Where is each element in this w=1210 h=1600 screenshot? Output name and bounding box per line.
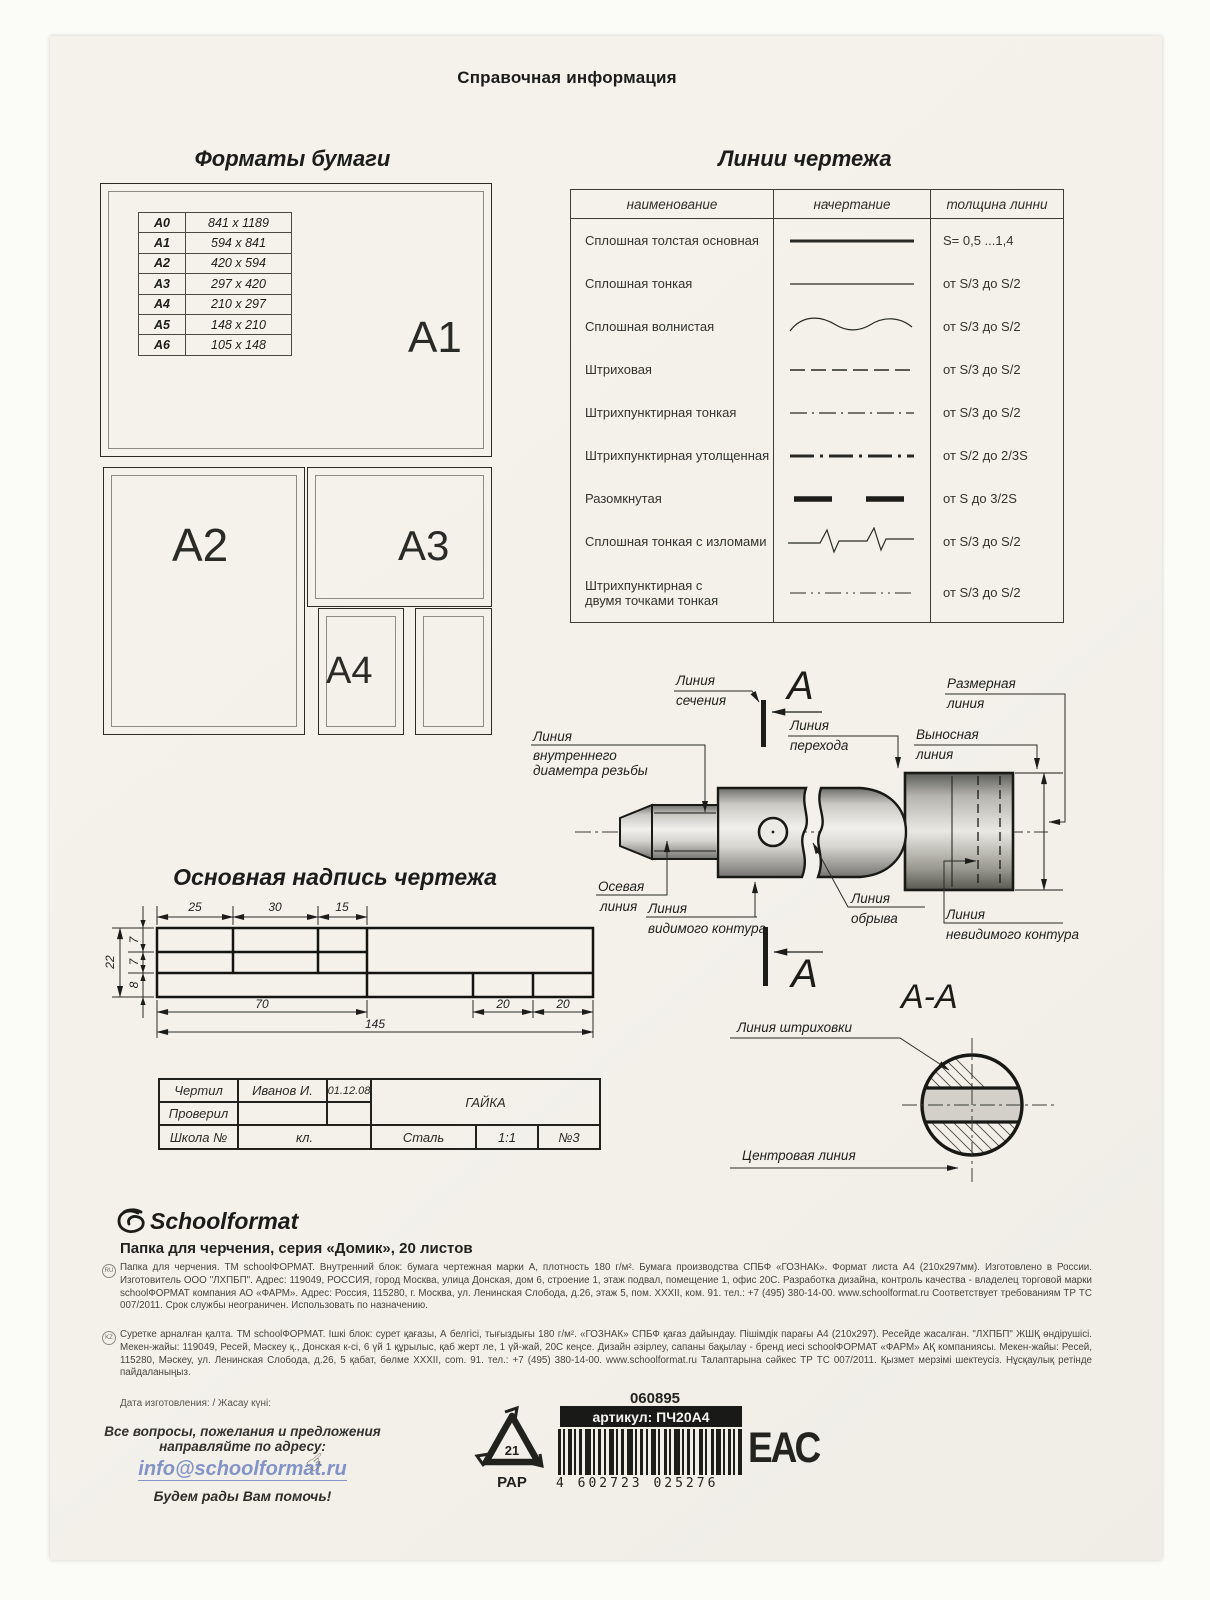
dim-20a: 20 xyxy=(483,997,523,1011)
dim-25: 25 xyxy=(175,900,215,914)
table-row: A6105 x 148 xyxy=(139,334,291,354)
table-row: Сплошная толстая основная S= 0,5 ...1,4 xyxy=(571,219,1063,262)
product-description-ru: Папка для черчения. ТМ schoolФОРМАТ. Вну… xyxy=(120,1262,1092,1313)
dim-7a: 7 xyxy=(122,928,146,952)
callout-section-line: Линия xyxy=(676,673,715,688)
callout-center-line: Центровая линия xyxy=(742,1148,856,1163)
tb-scale: 1:1 xyxy=(477,1126,537,1148)
callout-hidden-contour-line-2: невидимого контура xyxy=(946,927,1079,942)
line-sample-solid-thick xyxy=(786,226,918,256)
dim-8: 8 xyxy=(122,973,146,997)
format-box-a2 xyxy=(103,467,305,735)
callout-thread-diameter-line: Линия xyxy=(533,729,572,744)
line-sample-zigzag xyxy=(786,527,918,557)
callout-hatch-line: Линия штриховки xyxy=(737,1020,852,1035)
line-sample-solid-thin xyxy=(786,269,918,299)
tb-school: Школа № xyxy=(160,1126,237,1148)
manufacture-date-label: Дата изготовления: / Жасау күні: xyxy=(120,1398,271,1409)
section-letter-top: А xyxy=(787,666,814,706)
schoolformat-logo-icon xyxy=(119,1210,143,1232)
section-view-a-a xyxy=(835,1038,1060,1182)
table-row: A4210 x 297 xyxy=(139,294,291,314)
table-row: Сплошная волнистая от S/3 до S/2 xyxy=(571,305,1063,348)
format-label-a2: A2 xyxy=(172,522,228,568)
dim-7b: 7 xyxy=(122,950,146,974)
section-view-title: А-А xyxy=(901,980,958,1014)
eac-mark: ЕАС xyxy=(748,1424,819,1472)
tb-date: 01.12.08 xyxy=(328,1080,370,1101)
callout-transition-line: Линия xyxy=(790,718,829,733)
title-block-dimension-drawing xyxy=(157,928,593,997)
callout-extension-line-2: линия xyxy=(916,747,953,762)
kz-mark-icon: KZ xyxy=(102,1331,116,1345)
callout-dimension-line-2: линия xyxy=(947,696,984,711)
titleblock-heading: Основная надпись чертежа xyxy=(165,864,505,891)
product-title: Папка для черчения, серия «Домик», 20 ли… xyxy=(120,1240,473,1257)
callout-section-line-2: сечения xyxy=(676,693,726,708)
recycle-number-label: 21 xyxy=(505,1443,519,1458)
table-row: Штриховая от S/3 до S/2 xyxy=(571,348,1063,391)
product-code: 060895 xyxy=(605,1390,705,1407)
tb-part-name: ГАЙКА xyxy=(372,1080,599,1124)
dim-145: 145 xyxy=(355,1017,395,1031)
table-row: Сплошная тонкая от S/3 до S/2 xyxy=(571,262,1063,305)
callout-dimension-line: Размерная xyxy=(947,676,1016,691)
table-row: Разомкнутая от S до 3/2S xyxy=(571,477,1063,520)
callout-hidden-contour-line: Линия xyxy=(946,907,985,922)
dim-20b: 20 xyxy=(543,997,583,1011)
table-row: Штрихпунктирная утолщенная от S/2 до 2/3… xyxy=(571,434,1063,477)
callout-visible-contour-line: Линия xyxy=(648,901,687,916)
format-label-a3: A3 xyxy=(398,525,449,567)
table-row: Сплошная тонкая с изломами от S/3 до S/2 xyxy=(571,520,1063,563)
section-bar-top xyxy=(761,700,766,747)
callout-break-line: Линия xyxy=(851,891,890,906)
tb-drew-label: Чертил xyxy=(160,1080,237,1101)
barcode-digits: 4 602723 025276 xyxy=(556,1476,746,1491)
callout-thread-diameter-line-3: диаметра резьбы xyxy=(533,763,648,778)
contact-line: Все вопросы, пожелания и предложения нап… xyxy=(85,1424,400,1454)
line-sample-dash-dot-thick xyxy=(786,441,918,471)
dim-70: 70 xyxy=(242,997,282,1011)
lines-heading: Линии чертежа xyxy=(660,146,950,172)
line-sample-dash-double-dot xyxy=(786,578,918,608)
table-row: Штрихпунктирная тонкая от S/3 до S/2 xyxy=(571,391,1063,434)
formats-table: A0841 x 1189 A1594 x 841 A2420 x 594 A32… xyxy=(138,212,292,356)
dim-15: 15 xyxy=(322,900,362,914)
tb-checked-label: Проверил xyxy=(160,1103,237,1124)
help-line: Будем рады Вам помочь! xyxy=(85,1488,400,1504)
format-label-a1: A1 xyxy=(408,316,462,360)
callout-thread-diameter-line-2: внутреннего xyxy=(533,748,617,763)
callout-extension-line: Выносная xyxy=(916,727,979,742)
callout-break-line-2: обрыва xyxy=(851,911,898,926)
contact-block: Все вопросы, пожелания и предложения нап… xyxy=(85,1424,400,1504)
tb-material: Сталь xyxy=(372,1126,475,1148)
table-row: Штрихпунктирная сдвумя точками тонкая от… xyxy=(571,563,1063,622)
table-header: наименование начертание толщина линни xyxy=(571,190,1063,219)
brand-name: Schoolformat xyxy=(150,1208,298,1235)
callout-axis-line-2: линия xyxy=(600,899,637,914)
formats-heading: Форматы бумаги xyxy=(150,146,435,172)
format-box-a5 xyxy=(415,608,492,735)
dim-22: 22 xyxy=(98,950,122,974)
table-row: A0841 x 1189 xyxy=(139,213,291,232)
callout-transition-line-2: перехода xyxy=(790,738,848,753)
barcode xyxy=(558,1429,742,1475)
tb-sheet-number: №3 xyxy=(539,1126,599,1148)
section-letter-bottom: А xyxy=(791,954,818,994)
dim-30: 30 xyxy=(255,900,295,914)
ru-mark-icon: RU xyxy=(102,1264,116,1278)
table-row: A1594 x 841 xyxy=(139,232,291,252)
tb-class: кл. xyxy=(239,1126,370,1148)
page-title: Справочная информация xyxy=(0,68,1134,88)
sku-badge: артикул: ПЧ20А4 xyxy=(560,1406,742,1427)
line-sample-open-section xyxy=(786,484,918,514)
line-types-table: наименование начертание толщина линни Сп… xyxy=(570,189,1064,623)
line-sample-wavy xyxy=(786,312,918,342)
product-description-kz: Суретке арналған қалта. ТМ schoolФОРМАТ.… xyxy=(120,1329,1092,1380)
callout-visible-contour-line-2: видимого контура xyxy=(648,921,766,936)
table-row: A3297 x 420 xyxy=(139,273,291,293)
format-label-a4: A4 xyxy=(326,652,372,690)
line-sample-dashed xyxy=(786,355,918,385)
line-sample-dash-dot-thin xyxy=(786,398,918,428)
filled-title-block: Чертил Иванов И. 01.12.08 ГАЙКА Проверил… xyxy=(158,1078,601,1150)
tb-drew-name: Иванов И. xyxy=(239,1080,326,1101)
table-row: A2420 x 594 xyxy=(139,253,291,273)
recycle-material-label: PAP xyxy=(497,1474,527,1491)
callout-axis-line: Осевая xyxy=(598,879,644,894)
table-row: A5148 x 210 xyxy=(139,314,291,334)
